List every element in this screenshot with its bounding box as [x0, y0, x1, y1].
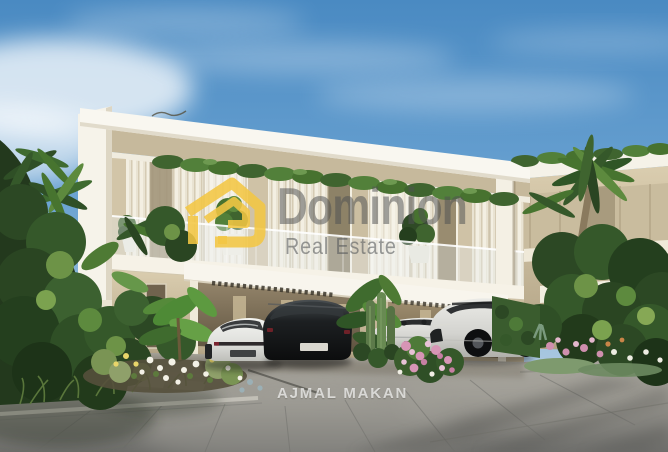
car-black-suv: [263, 300, 352, 369]
license-plate: [300, 343, 328, 351]
real-estate-render-image: Dominion Real Estate AJMAL MAKAN: [0, 0, 668, 452]
scene-illustration: [0, 0, 668, 452]
license-plate: [230, 350, 256, 357]
